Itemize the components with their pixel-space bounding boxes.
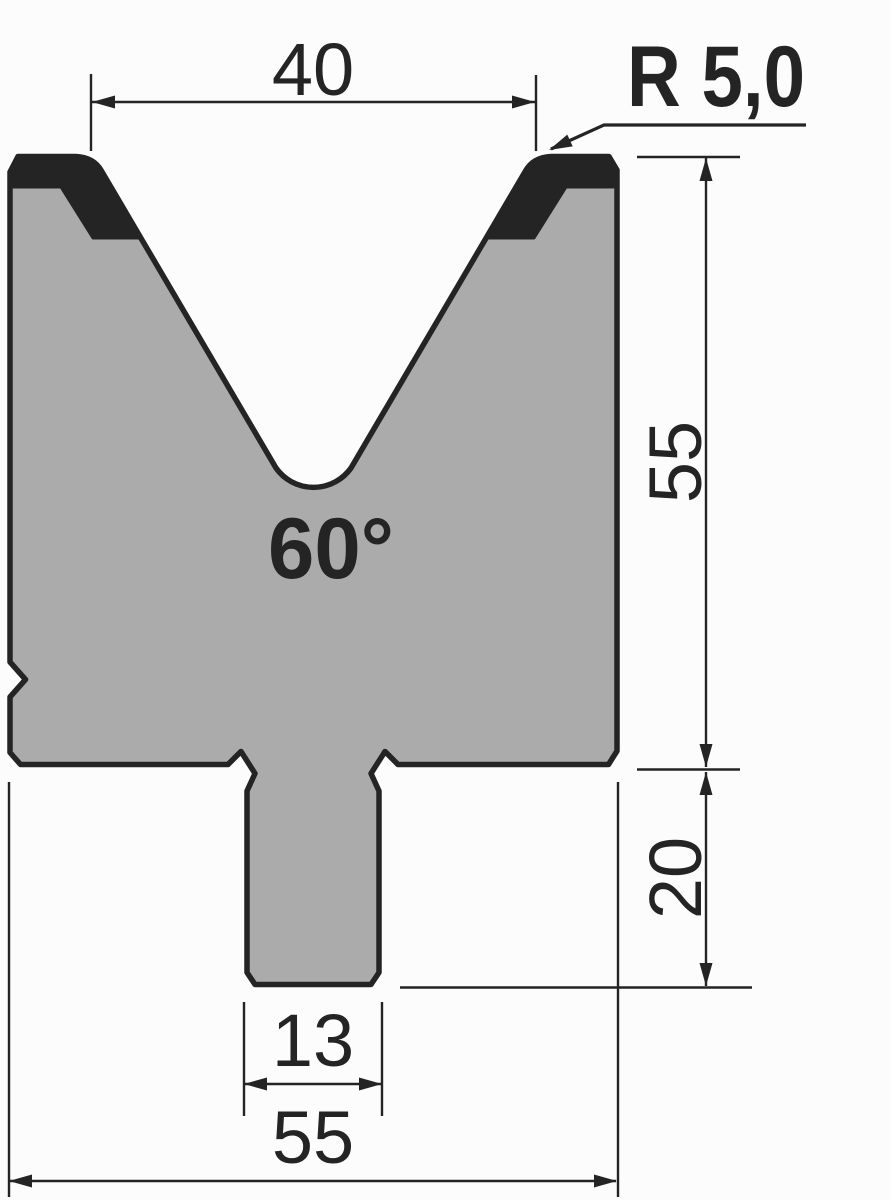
tang-width-label: 13 [272, 999, 354, 1082]
technical-drawing-page: 40 R 5,0 60° 55 20 [0, 0, 890, 1200]
die-drawing-canvas: 40 R 5,0 60° 55 20 [0, 0, 890, 1200]
tang-height-label: 20 [634, 837, 717, 919]
body-height-label: 55 [634, 421, 717, 503]
top-width-label: 40 [272, 28, 354, 111]
base-width-label: 55 [272, 1096, 354, 1179]
corner-radius-label: R 5,0 [627, 29, 805, 125]
vee-angle-label: 60° [268, 501, 394, 597]
